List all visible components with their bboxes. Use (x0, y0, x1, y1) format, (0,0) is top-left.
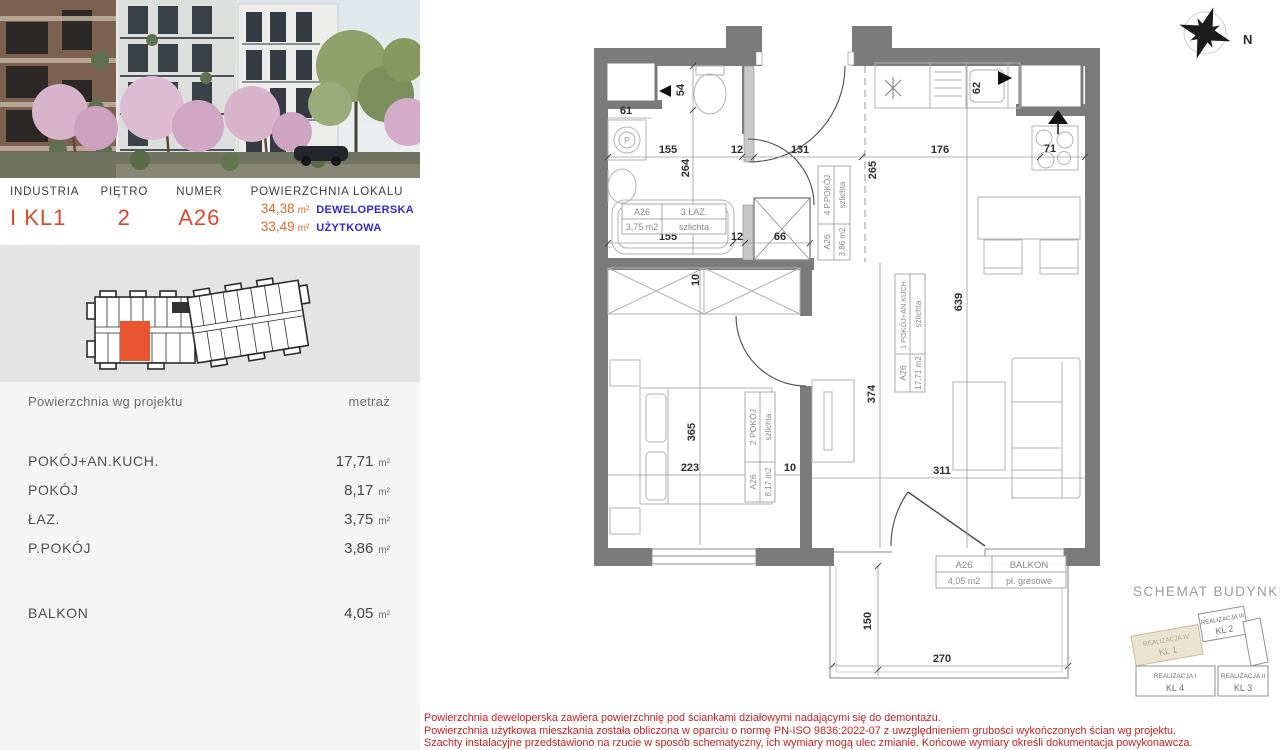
building-right-wing (186, 273, 317, 369)
dim: 150 (862, 612, 874, 630)
apartment-card-page: INDUSTRIA I KL1 PIĘTRO 2 NUMER A26 POWIE… (0, 0, 1280, 750)
table-row: POKÓJ 8,17m² (28, 482, 390, 500)
dim: 639 (953, 293, 965, 311)
dim: 10 (784, 462, 796, 474)
area-usable-unit: m² (298, 223, 310, 234)
building-photo-art (0, 0, 420, 178)
compass-icon: N (1171, 0, 1252, 67)
unit-number-label: NUMER (160, 186, 239, 198)
shaft-top-right (1020, 64, 1082, 108)
vent-left-icon (659, 85, 671, 97)
area-usable-row: 33,49 m² UŻYTKOWA (251, 219, 414, 234)
dim: 311 (933, 465, 951, 477)
dim: 71 (1044, 143, 1056, 155)
investment-label: INDUSTRIA (10, 186, 89, 198)
floor-overview-art (0, 245, 420, 382)
washer-symbol: P (624, 136, 630, 146)
svg-text:szlichta: szlichta (679, 222, 709, 232)
table-row: P.POKÓJ 3,86m² (28, 540, 390, 558)
table-row: POKÓJ+AN.KUCH. 17,71m² (28, 453, 390, 471)
svg-text:szlichta: szlichta (764, 413, 773, 440)
bedroom-door (736, 316, 806, 386)
area-developer-value: 34,38 (251, 201, 295, 216)
vent-star-icon (885, 77, 901, 99)
door-frame-mark (848, 52, 854, 65)
svg-text:REALIZACJA II: REALIZACJA II (1221, 673, 1266, 680)
svg-text:8,17 m2: 8,17 m2 (764, 467, 773, 496)
areas-table-header-right: metraż (348, 394, 390, 409)
room-area: 3,75 (344, 511, 373, 528)
area-developer-unit: m² (298, 205, 310, 216)
dim: 61 (620, 105, 632, 117)
svg-text:1 POKÓJ+AN.KUCH.: 1 POKÓJ+AN.KUCH. (899, 279, 908, 349)
svg-text:KL 4: KL 4 (1166, 683, 1184, 693)
bedroom-window (652, 549, 756, 564)
svg-text:szlichta: szlichta (914, 300, 923, 327)
room-area-unit: m² (378, 516, 390, 527)
dim: 131 (791, 144, 809, 156)
dining-table-icon (978, 197, 1080, 274)
sofa-icon (1012, 358, 1080, 498)
table-row: ŁAZ. 3,75m² (28, 511, 390, 529)
balcony-door (834, 492, 985, 552)
sidebar: INDUSTRIA I KL1 PIĘTRO 2 NUMER A26 POWIE… (0, 0, 420, 750)
area-usable-value: 33,49 (251, 219, 295, 234)
vent-right-icon (998, 71, 1012, 85)
washing-machine-icon: P (608, 120, 646, 160)
floor-overview-selector[interactable] (0, 245, 420, 382)
dim: 62 (971, 82, 983, 94)
stairwell-core (172, 302, 190, 313)
schematic-connector (1243, 618, 1268, 666)
svg-text:A26: A26 (634, 207, 650, 217)
room-label: POKÓJ+AN.KUCH. (28, 453, 159, 469)
dim: 265 (867, 161, 879, 179)
tv-unit-icon (812, 380, 854, 462)
svg-text:KL 3: KL 3 (1234, 683, 1252, 693)
unit-number-value: A26 (160, 205, 239, 231)
svg-text:szlichta: szlichta (838, 181, 847, 208)
svg-text:3,75 m2: 3,75 m2 (626, 222, 659, 232)
svg-text:A26: A26 (956, 560, 973, 571)
unit-info-bar: INDUSTRIA I KL1 PIĘTRO 2 NUMER A26 POWIE… (0, 178, 420, 242)
dim: 374 (866, 384, 878, 403)
area-usable-type: UŻYTKOWA (316, 222, 381, 234)
dim: 66 (774, 231, 786, 243)
schematic-segment-kl2[interactable]: REALIZACJA III KL 2 (1198, 606, 1248, 642)
schematic-segment-kl3[interactable]: REALIZACJA II KL 3 (1218, 666, 1268, 696)
room-area-unit: m² (378, 487, 390, 498)
svg-text:2 POKÓJ: 2 POKÓJ (748, 409, 758, 445)
schematic-title: SCHEMAT BUDYNKU (1133, 584, 1280, 599)
door-frame-mark (756, 52, 762, 65)
dim: 223 (681, 462, 699, 474)
vent-markers (659, 71, 1068, 134)
kitchen-counter (875, 63, 1020, 108)
room-label-living: A26 1 POKÓJ+AN.KUCH. 17,71 m2 szlichta (895, 274, 925, 392)
room-label: POKÓJ (28, 482, 78, 498)
room-label-hall: A26 4 P.POKÓJ 3,86 m2 szlichta (818, 166, 850, 260)
wardrobe-icon (608, 268, 800, 314)
area-label: POWIERZCHNIA LOKALU (251, 186, 414, 198)
floor-value: 2 (89, 205, 160, 231)
dim: 176 (931, 144, 949, 156)
plan-area: N (420, 0, 1280, 750)
dim: 270 (933, 653, 951, 665)
svg-text:pł. gresowe: pł. gresowe (1006, 576, 1052, 586)
areas-table-header-left: Powierzchnia wg projektu (28, 394, 183, 409)
room-label: ŁAZ. (28, 511, 60, 527)
disclaimer-line-3: Szachty instalacyjne przedstawiono na rz… (424, 737, 1276, 750)
room-label-bathroom: A26 3 ŁAZ. 3,75 m2 szlichta (622, 204, 726, 234)
room-area-unit: m² (378, 610, 390, 621)
svg-text:A26: A26 (898, 365, 908, 380)
schematic-segment-kl4[interactable]: REALIZACJA I KL 4 (1136, 666, 1215, 696)
room-label: P.POKÓJ (28, 540, 91, 556)
room-label: BALKON (28, 605, 88, 621)
disclaimer: Powierzchnia deweloperska zawiera powier… (424, 712, 1276, 750)
svg-text:REALIZACJA I: REALIZACJA I (1154, 673, 1197, 680)
schematic-segment-kl1[interactable]: REALIZACJA IV KL 1 (1131, 624, 1203, 665)
dim: 10 (690, 274, 702, 286)
dim: 365 (686, 423, 698, 441)
room-label-balcony: A26 BALKON 4,05 m2 pł. gresowe (936, 556, 1066, 588)
disclaimer-line-2: Powierzchnia użytkowa mieszkania została… (424, 725, 1276, 738)
svg-text:17,71 m2: 17,71 m2 (914, 356, 923, 390)
room-area: 3,86 (344, 540, 373, 557)
dim: 264 (680, 158, 692, 177)
dim: 12 (731, 144, 743, 156)
dishwasher-icon (934, 72, 962, 96)
selected-unit-marker[interactable] (120, 321, 150, 361)
room-label-bedroom: A26 2 POKÓJ 8,17 m2 szlichta (745, 392, 775, 502)
room-area: 4,05 (344, 605, 373, 622)
svg-text:A26: A26 (748, 474, 758, 489)
room-area: 17,71 (336, 453, 374, 470)
compass-north-label: N (1243, 32, 1252, 47)
room-area: 8,17 (344, 482, 373, 499)
floor-label: PIĘTRO (89, 186, 160, 198)
dim: 12 (731, 231, 743, 243)
areas-table: Powierzchnia wg projektu metraż POKÓJ+AN… (0, 382, 420, 750)
toilet-icon (694, 66, 726, 114)
table-row-balcony: BALKON 4,05m² (28, 605, 390, 623)
room-area-unit: m² (378, 545, 390, 556)
svg-text:4 P.POKÓJ: 4 P.POKÓJ (823, 175, 832, 215)
disclaimer-line-1: Powierzchnia deweloperska zawiera powier… (424, 712, 1276, 725)
building-photo (0, 0, 420, 178)
svg-text:3,86 m2: 3,86 m2 (838, 227, 847, 256)
dim: 155 (659, 144, 677, 156)
floor-plan-drawing: N (420, 0, 1280, 750)
investment-value: I KL1 (10, 205, 89, 231)
building-schematic: SCHEMAT BUDYNKU REALIZACJA IV KL 1 REALI… (1131, 584, 1280, 696)
washbasin-icon (608, 169, 636, 203)
installation-shaft (754, 198, 810, 260)
dim: 54 (675, 83, 687, 96)
area-developer-type: DEWELOPERSKA (316, 204, 414, 216)
area-developer-row: 34,38 m² DEWELOPERSKA (251, 201, 414, 216)
svg-text:3 ŁAZ.: 3 ŁAZ. (681, 207, 708, 217)
svg-text:4,05 m2: 4,05 m2 (948, 576, 981, 586)
room-area-unit: m² (378, 458, 390, 469)
svg-text:A26: A26 (822, 234, 832, 249)
coffee-table-icon (953, 382, 1005, 470)
svg-text:BALKON: BALKON (1010, 560, 1049, 571)
shaft-top-left (606, 62, 656, 102)
